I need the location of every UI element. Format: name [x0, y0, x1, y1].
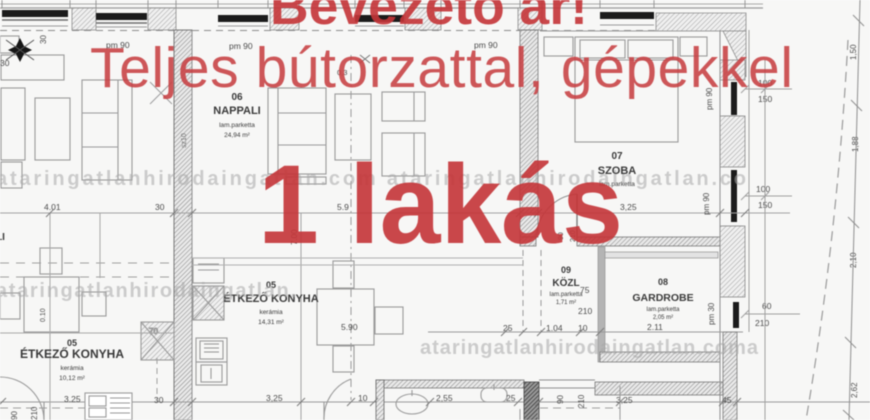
- svg-text:KÖZL: KÖZL: [552, 276, 579, 289]
- svg-text:kerámia: kerámia: [259, 309, 283, 316]
- svg-text:Teljes bútorzattal, gépekkel: Teljes bútorzattal, gépekkel: [90, 36, 793, 100]
- svg-text:210: 210: [755, 318, 769, 328]
- svg-text:25: 25: [503, 323, 513, 333]
- svg-text:2,05 m²: 2,05 m²: [653, 315, 673, 321]
- svg-text:1,88: 1,88: [851, 136, 860, 152]
- svg-text:30: 30: [155, 202, 165, 212]
- svg-text:1,71 m²: 1,71 m²: [556, 300, 576, 306]
- svg-text:sz10: sz10: [181, 133, 188, 148]
- svg-text:ataringatlanhirodaingatlan.: ataringatlanhirodaingatlan.: [0, 280, 296, 302]
- svg-text:3.25: 3.25: [64, 394, 81, 404]
- svg-text:14,31 m²: 14,31 m²: [258, 319, 284, 326]
- svg-text:1,50: 1,50: [849, 44, 858, 60]
- svg-text:2,62: 2,62: [850, 382, 859, 398]
- svg-text:2,55: 2,55: [436, 393, 453, 403]
- svg-text:45: 45: [722, 395, 732, 405]
- svg-text:0.10: 0.10: [40, 308, 47, 322]
- svg-text:kerámia: kerámia: [60, 365, 84, 372]
- svg-text:LI: LI: [0, 232, 5, 243]
- svg-text:1 lakás: 1 lakás: [258, 142, 623, 267]
- svg-text:NAPPALI: NAPPALI: [213, 105, 260, 117]
- svg-text:pm 90: pm 90: [702, 192, 711, 215]
- svg-text:08: 08: [658, 277, 668, 287]
- svg-text:30: 30: [39, 35, 48, 44]
- svg-text:ataringatlanhirodaingatlan.com: ataringatlanhirodaingatlan.coma: [420, 337, 759, 359]
- svg-text:10: 10: [358, 393, 368, 403]
- svg-text:10,12 m²: 10,12 m²: [59, 375, 85, 382]
- svg-text:60: 60: [762, 301, 772, 311]
- svg-text:90: 90: [556, 395, 565, 404]
- svg-text:90: 90: [10, 411, 19, 420]
- svg-text:Bevezető ár!: Bevezető ár!: [270, 0, 588, 36]
- svg-text:210: 210: [30, 406, 39, 420]
- svg-text:lam.parketta: lam.parketta: [646, 307, 680, 313]
- svg-text:GARDROBE: GARDROBE: [632, 292, 693, 304]
- svg-text:210: 210: [577, 394, 586, 408]
- svg-text:3,25: 3,25: [266, 393, 283, 403]
- svg-text:5.90: 5.90: [341, 322, 358, 332]
- svg-text:10: 10: [578, 323, 588, 333]
- svg-text:1.04: 1.04: [546, 323, 563, 333]
- svg-text:30: 30: [154, 395, 164, 405]
- svg-text:lam.parketta: lam.parketta: [549, 292, 583, 298]
- svg-text:30: 30: [0, 58, 10, 68]
- svg-text:pm 30: pm 30: [707, 302, 716, 325]
- svg-text:2.11: 2.11: [647, 322, 663, 332]
- svg-text:ÉTKEZŐ KONYHA: ÉTKEZŐ KONYHA: [20, 346, 124, 361]
- svg-text:25: 25: [506, 393, 516, 403]
- svg-text:24,94 m²: 24,94 m²: [224, 132, 250, 139]
- svg-text:210: 210: [578, 306, 592, 316]
- svg-text:lam.parketta: lam.parketta: [219, 122, 255, 129]
- svg-text:70: 70: [149, 327, 158, 336]
